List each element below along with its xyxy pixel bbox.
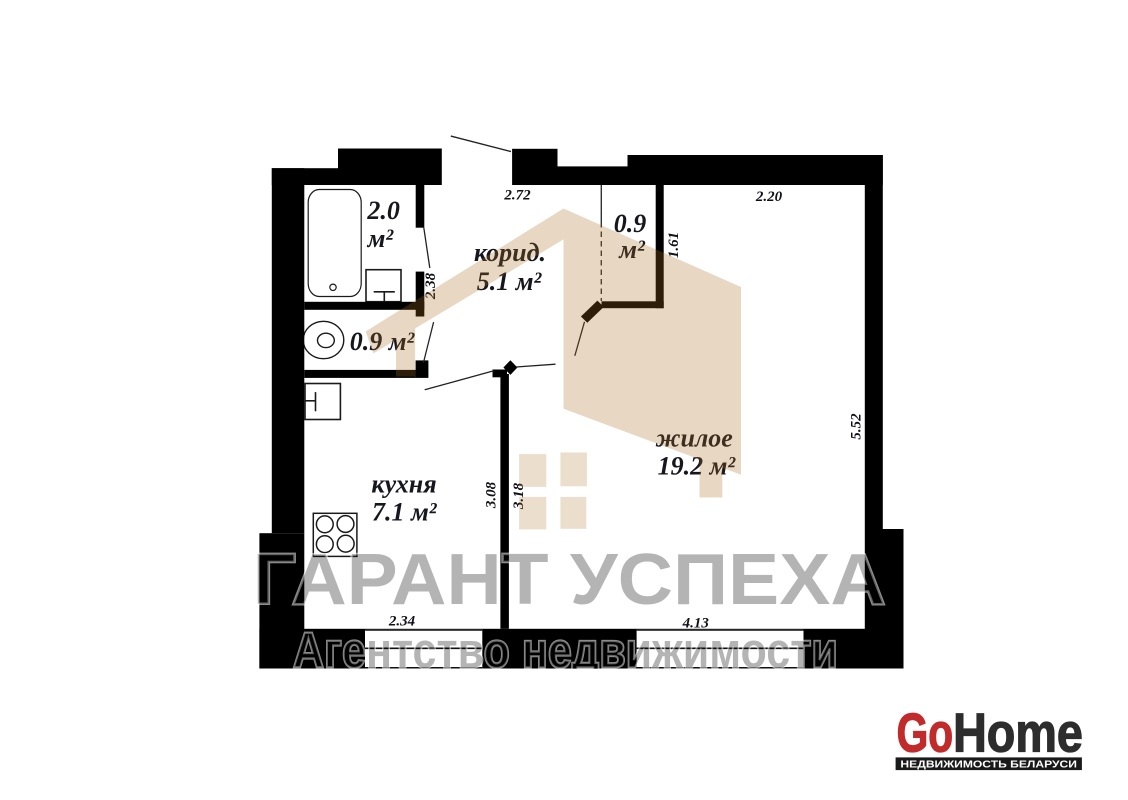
svg-text:5.52: 5.52	[849, 413, 865, 440]
svg-text:3.08: 3.08	[484, 481, 500, 509]
svg-text:Home: Home	[953, 702, 1083, 764]
svg-text:7.1 м²: 7.1 м²	[372, 498, 438, 527]
svg-text:1.61: 1.61	[666, 232, 682, 258]
svg-text:кухня: кухня	[371, 469, 436, 498]
svg-text:2.0: 2.0	[366, 196, 400, 225]
svg-text:2.72: 2.72	[503, 188, 531, 204]
svg-text:2.20: 2.20	[755, 189, 783, 205]
svg-text:ГАРАНТ УСПЕХА: ГАРАНТ УСПЕХА	[253, 540, 886, 620]
svg-text:Go: Go	[897, 702, 954, 764]
svg-text:м²: м²	[367, 224, 395, 253]
svg-text:НЕДВИЖИМОСТЬ БЕЛАРУСИ: НЕДВИЖИМОСТЬ БЕЛАРУСИ	[900, 759, 1077, 771]
